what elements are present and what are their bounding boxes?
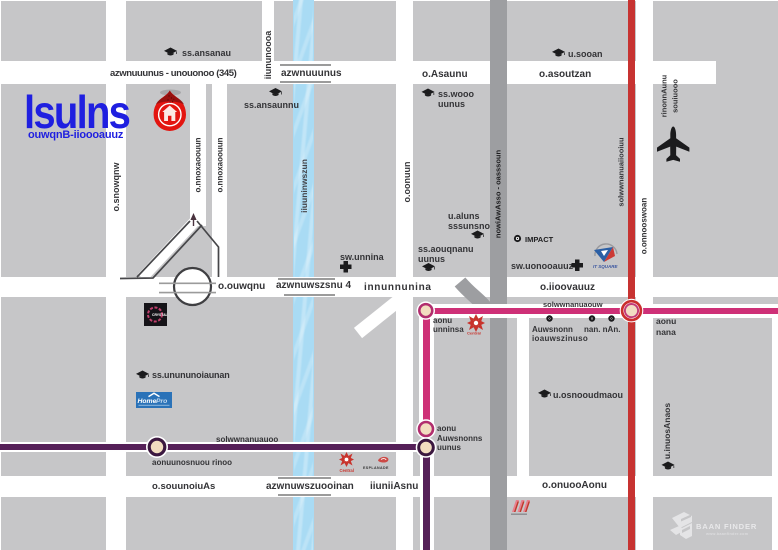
svg-text:Central: Central	[467, 331, 481, 336]
svg-text:Pro: Pro	[156, 398, 167, 405]
svg-text:CRYSTAL: CRYSTAL	[152, 313, 167, 317]
svg-text:IT SQUARE: IT SQUARE	[593, 264, 619, 269]
svg-text:Home: Home	[138, 398, 157, 405]
svg-text:BAAN FINDER: BAAN FINDER	[696, 522, 757, 531]
svg-text:ESPLANADE: ESPLANADE	[363, 466, 389, 470]
svg-text:Central: Central	[340, 468, 354, 473]
svg-text:www.baanfinder.com: www.baanfinder.com	[705, 532, 749, 536]
